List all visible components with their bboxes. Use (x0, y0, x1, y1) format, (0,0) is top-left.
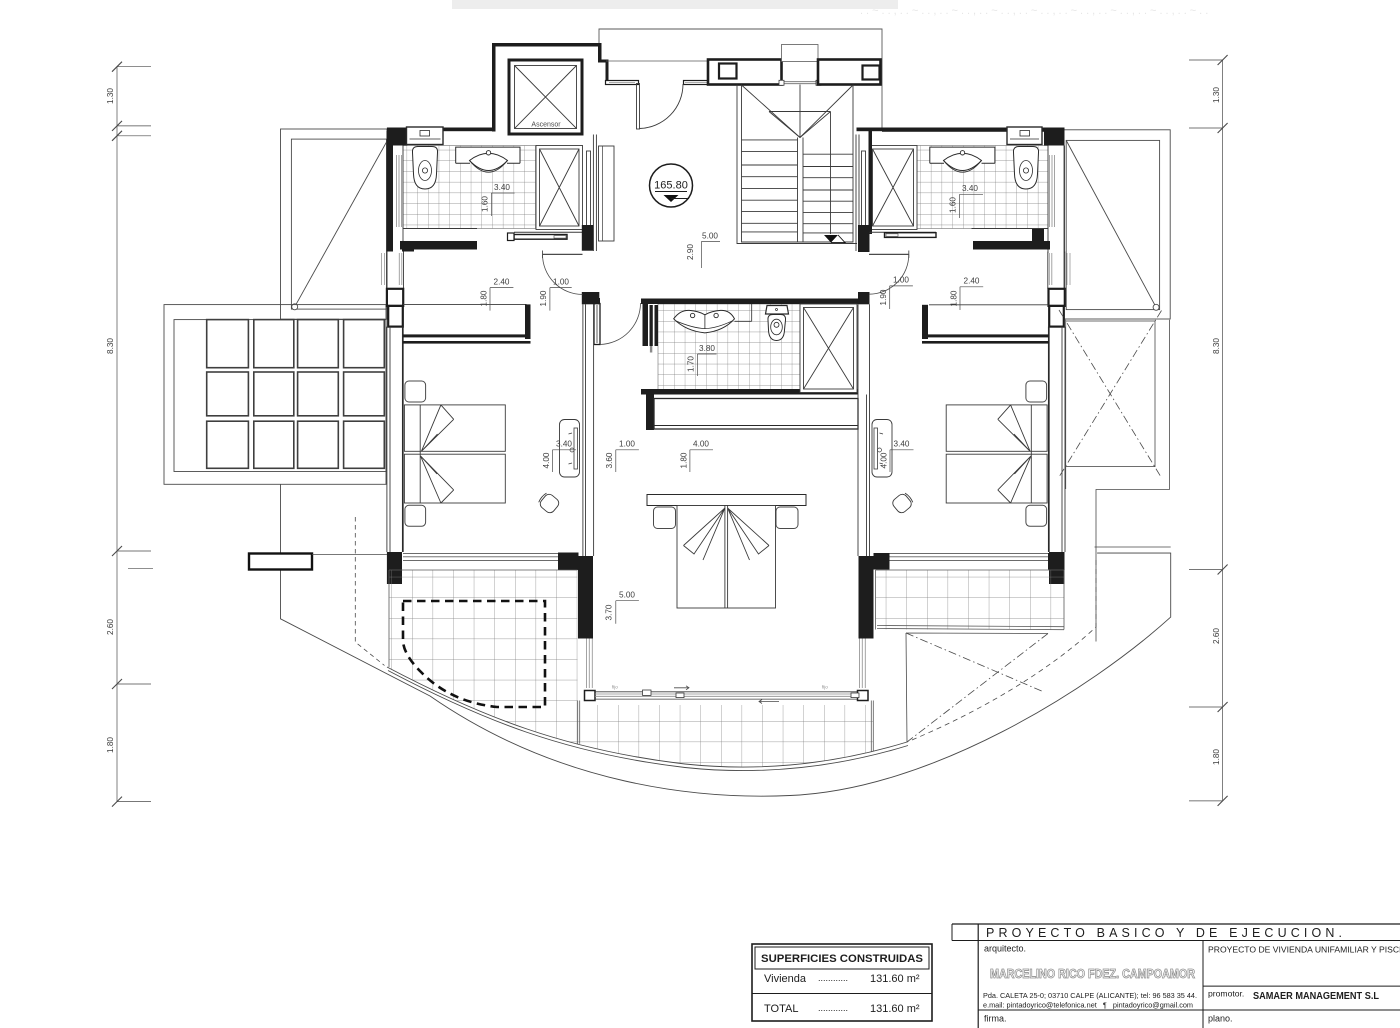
svg-text:1.60: 1.60 (481, 196, 490, 212)
svg-text:1.90: 1.90 (539, 290, 548, 306)
svg-text:3.80: 3.80 (699, 344, 715, 353)
svg-text:Vivienda: Vivienda (764, 973, 807, 985)
svg-text:Ascensor: Ascensor (531, 122, 561, 129)
svg-text:3.70: 3.70 (605, 604, 614, 620)
svg-text:3.40: 3.40 (494, 183, 510, 192)
svg-text:2.60: 2.60 (106, 619, 115, 635)
svg-text:2.40: 2.40 (964, 277, 980, 286)
svg-text:165.80: 165.80 (654, 180, 688, 192)
svg-text:MARCELINO RICO FDEZ. CAMPOAMOR: MARCELINO RICO FDEZ. CAMPOAMOR (990, 967, 1195, 981)
svg-text:1.30: 1.30 (106, 88, 115, 104)
svg-text:131.60 m²: 131.60 m² (870, 1003, 920, 1015)
svg-text:1.00: 1.00 (619, 440, 635, 449)
svg-text:1.80: 1.80 (106, 737, 115, 753)
svg-text:TOTAL: TOTAL (764, 1003, 798, 1015)
svg-text:4.00: 4.00 (542, 452, 551, 468)
svg-text:1.80: 1.80 (479, 290, 488, 306)
svg-text:promotor.: promotor. (1208, 989, 1244, 999)
svg-text:4.00: 4.00 (879, 452, 888, 468)
svg-text:8.30: 8.30 (1212, 338, 1221, 354)
svg-text:131.60 m²: 131.60 m² (870, 973, 920, 985)
svg-text:8.30: 8.30 (106, 338, 115, 354)
svg-text:SUPERFICIES CONSTRUIDAS: SUPERFICIES CONSTRUIDAS (761, 953, 923, 965)
svg-text:3.40: 3.40 (556, 440, 572, 449)
svg-text:Pda. CALETA 25-0; 03710 CALPE: Pda. CALETA 25-0; 03710 CALPE (ALICANTE)… (983, 991, 1197, 1000)
svg-text:2.90: 2.90 (686, 244, 695, 260)
svg-text:3.40: 3.40 (894, 440, 910, 449)
svg-text:3.40: 3.40 (962, 184, 978, 193)
svg-text:1.00: 1.00 (553, 277, 569, 286)
svg-text:..~..,..~..,..~..,..~..,..~..,: ..~..,..~..,..~..,..~..,..~..,..~..,..~.… (860, 5, 1211, 17)
svg-text:1.90: 1.90 (879, 289, 888, 305)
svg-text:firma.: firma. (984, 1014, 1007, 1024)
svg-text:5.00: 5.00 (619, 591, 635, 600)
svg-text:plano.: plano. (1208, 1014, 1233, 1024)
svg-text:1.80: 1.80 (949, 290, 958, 306)
svg-text:PROYECTO BASICO Y DE EJECUCION: PROYECTO BASICO Y DE EJECUCION. (986, 926, 1342, 940)
svg-text:fijo: fijo (612, 685, 618, 690)
svg-text:1.80: 1.80 (679, 452, 688, 468)
svg-text:............: ............ (818, 973, 848, 983)
svg-text:1.70: 1.70 (687, 356, 696, 372)
svg-text:fijo: fijo (822, 685, 828, 690)
svg-text:1.00: 1.00 (893, 276, 909, 285)
svg-text:arquitecto.: arquitecto. (984, 944, 1026, 954)
svg-text:4.00: 4.00 (693, 440, 709, 449)
svg-text:1.60: 1.60 (949, 197, 958, 213)
svg-text:2.40: 2.40 (494, 277, 510, 286)
svg-text:1.80: 1.80 (1212, 749, 1221, 765)
svg-text:e.mail: pintadoyrico@telefonic: e.mail: pintadoyrico@telefonica.net ¶ pi… (983, 1001, 1193, 1010)
svg-text:PROYECTO DE VIVIENDA UNIFAMILI: PROYECTO DE VIVIENDA UNIFAMILIAR Y PISCI… (1208, 945, 1400, 955)
svg-text:3.60: 3.60 (605, 452, 614, 468)
svg-text:1.30: 1.30 (1212, 87, 1221, 103)
svg-text:SAMAER MANAGEMENT S.L: SAMAER MANAGEMENT S.L (1253, 991, 1379, 1002)
svg-text:5.00: 5.00 (702, 232, 718, 241)
svg-text:............: ............ (818, 1003, 848, 1013)
svg-text:2.60: 2.60 (1212, 628, 1221, 644)
